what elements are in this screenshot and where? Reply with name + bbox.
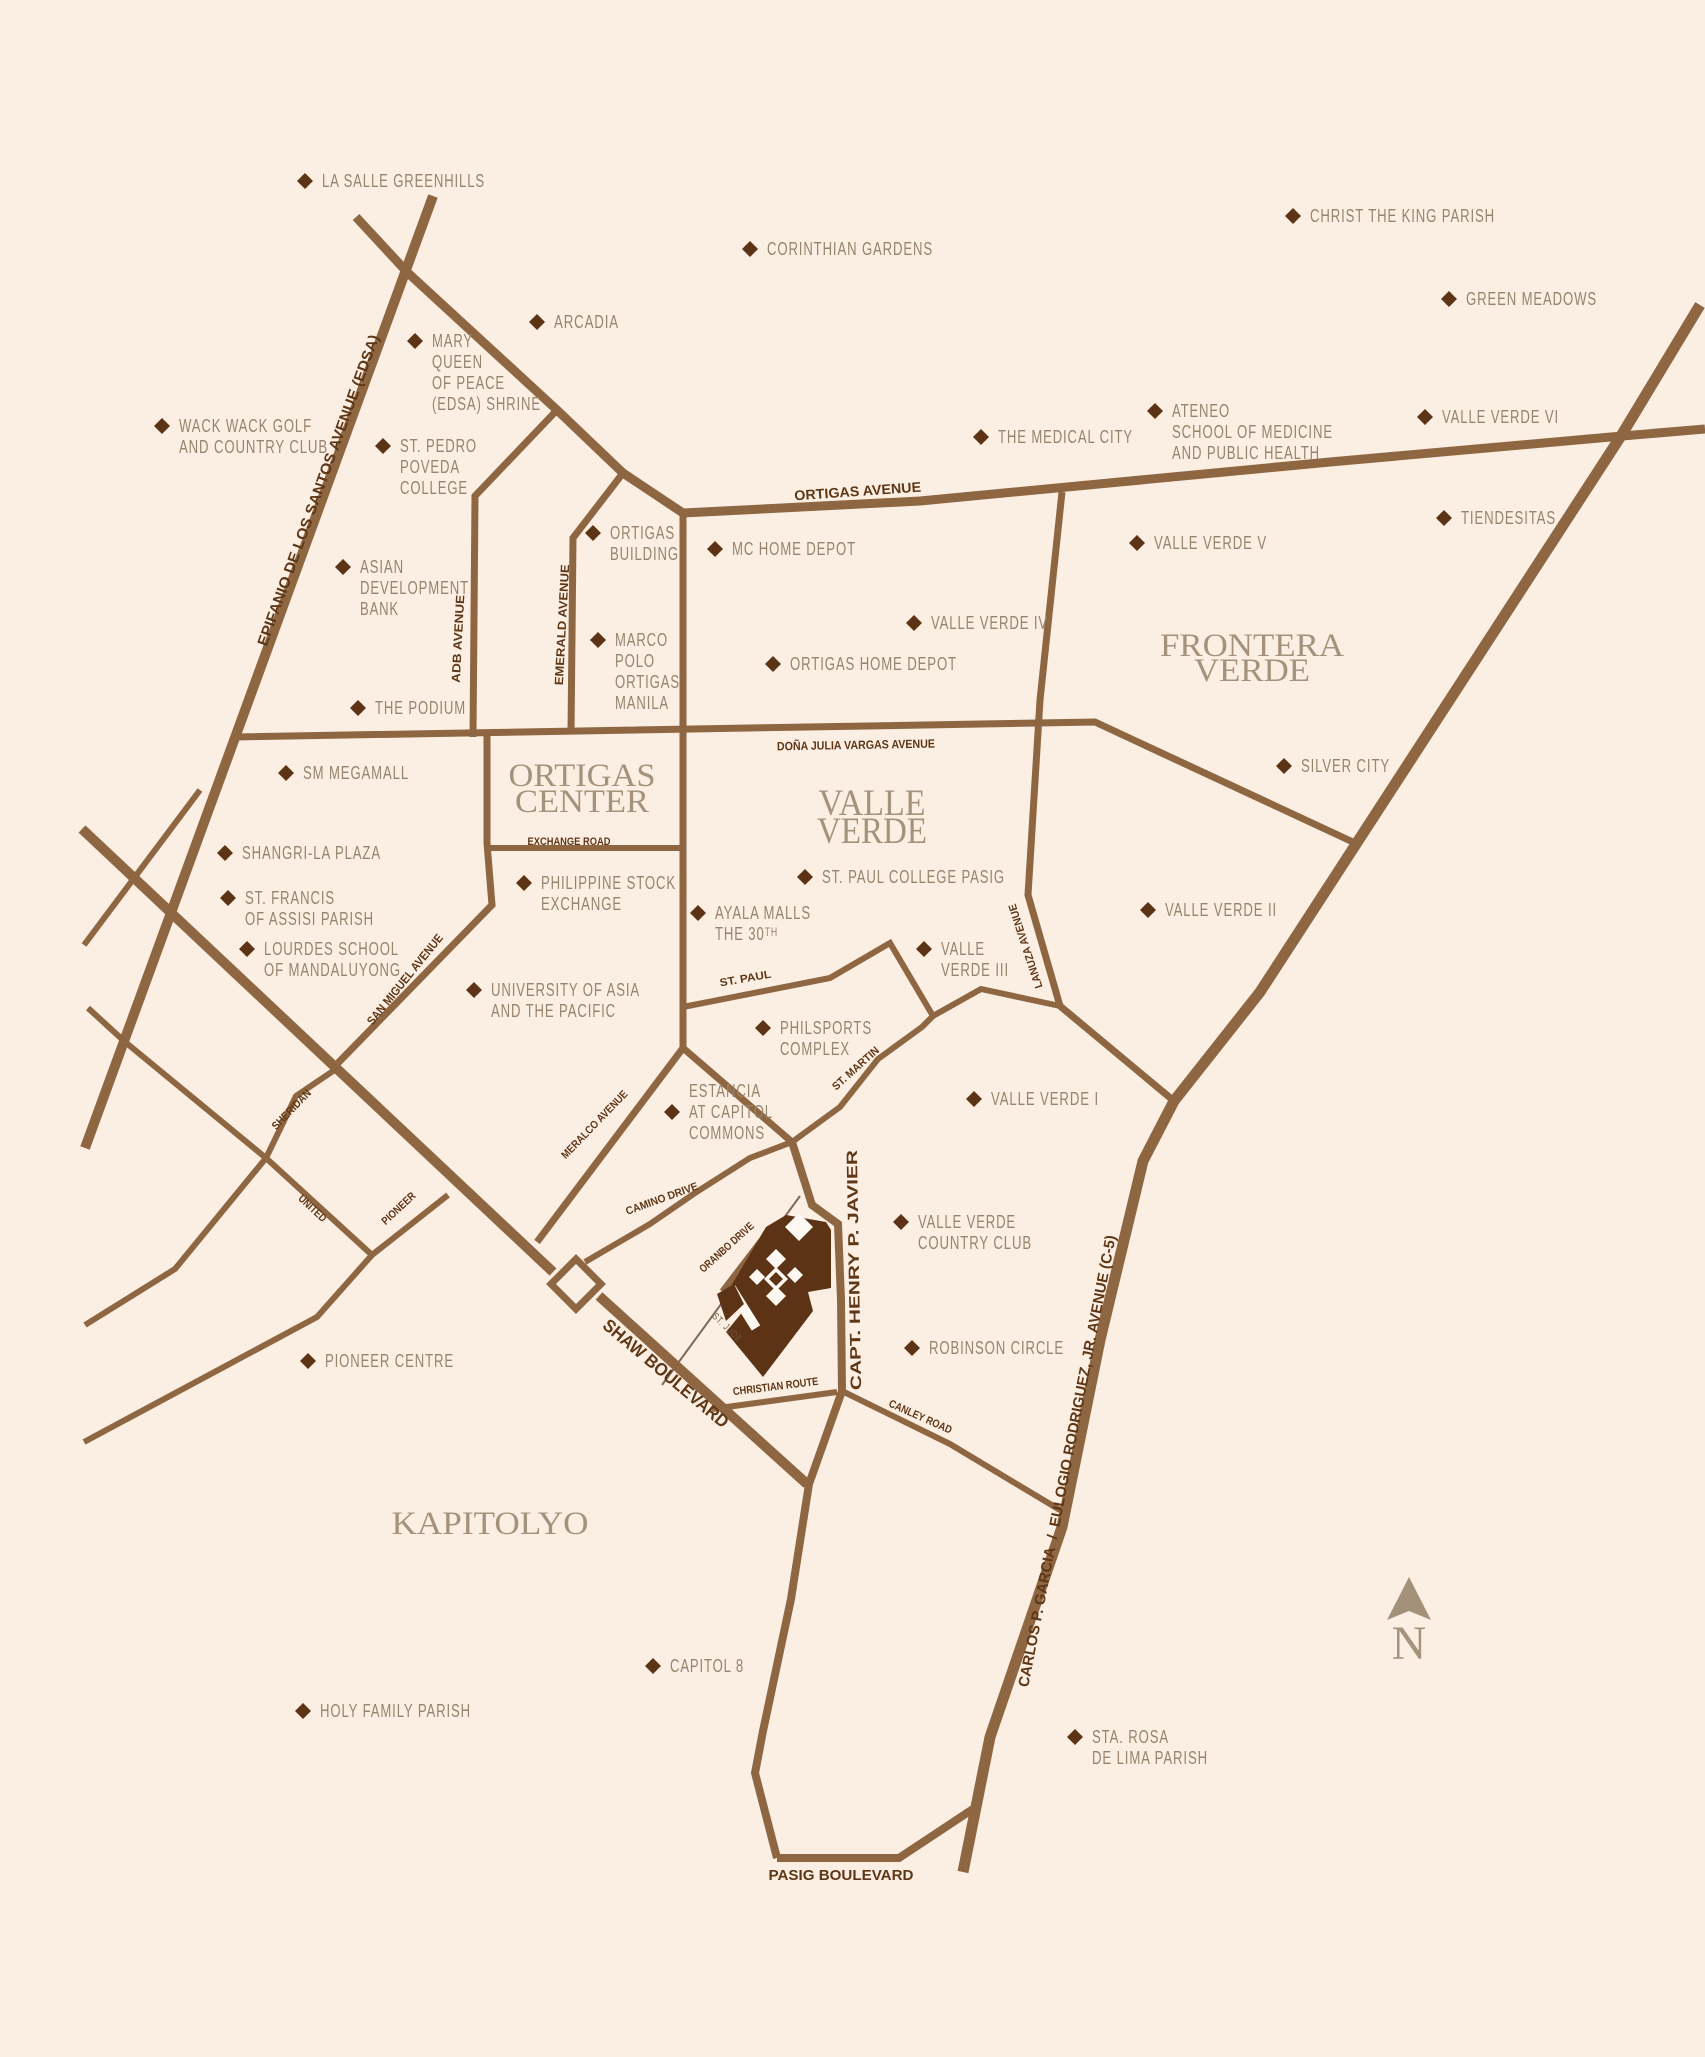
svg-text:ASIAN: ASIAN xyxy=(360,557,404,577)
svg-text:MARY: MARY xyxy=(432,331,473,351)
svg-text:LOURDES SCHOOL: LOURDES SCHOOL xyxy=(264,939,399,959)
svg-text:SCHOOL OF MEDICINE: SCHOOL OF MEDICINE xyxy=(1172,422,1333,442)
svg-text:OF MANDALUYONG: OF MANDALUYONG xyxy=(264,960,401,980)
svg-text:MC HOME DEPOT: MC HOME DEPOT xyxy=(732,539,856,559)
svg-text:VALLE VERDE: VALLE VERDE xyxy=(918,1212,1016,1232)
svg-text:OF ASSISI PARISH: OF ASSISI PARISH xyxy=(245,909,374,929)
svg-text:OF PEACE: OF PEACE xyxy=(432,373,505,393)
svg-text:TIENDESITAS: TIENDESITAS xyxy=(1461,508,1556,528)
svg-text:ATENEO: ATENEO xyxy=(1172,401,1230,421)
svg-text:CAPITOL 8: CAPITOL 8 xyxy=(670,1656,744,1676)
svg-text:PHILSPORTS: PHILSPORTS xyxy=(780,1018,872,1038)
svg-text:AT CAPITOL: AT CAPITOL xyxy=(689,1102,773,1122)
svg-text:THE MEDICAL CITY: THE MEDICAL CITY xyxy=(998,427,1133,447)
svg-text:UNIVERSITY OF ASIA: UNIVERSITY OF ASIA xyxy=(491,980,640,1000)
svg-text:KAPITOLYO: KAPITOLYO xyxy=(392,1506,589,1542)
svg-text:EXCHANGE: EXCHANGE xyxy=(541,894,622,914)
svg-text:MANILA: MANILA xyxy=(615,693,669,713)
svg-text:SM MEGAMALL: SM MEGAMALL xyxy=(303,763,409,783)
svg-text:LA SALLE GREENHILLS: LA SALLE GREENHILLS xyxy=(322,171,485,191)
svg-text:AYALA MALLS: AYALA MALLS xyxy=(715,903,811,923)
svg-text:BANK: BANK xyxy=(360,599,399,619)
svg-text:CHRIST THE KING PARISH: CHRIST THE KING PARISH xyxy=(1310,206,1495,226)
svg-text:POVEDA: POVEDA xyxy=(400,457,460,477)
svg-text:VALLE: VALLE xyxy=(941,939,985,959)
svg-text:(EDSA) SHRINE: (EDSA) SHRINE xyxy=(432,394,541,414)
svg-text:WACK WACK GOLF: WACK WACK GOLF xyxy=(179,416,312,436)
svg-text:AND PUBLIC HEALTH: AND PUBLIC HEALTH xyxy=(1172,443,1320,463)
svg-text:N: N xyxy=(1392,1617,1427,1670)
svg-text:VALLE VERDE VI: VALLE VERDE VI xyxy=(1442,407,1559,427)
svg-text:VERDE III: VERDE III xyxy=(941,960,1009,980)
svg-text:SILVER CITY: SILVER CITY xyxy=(1301,756,1390,776)
svg-text:PASIG BOULEVARD: PASIG BOULEVARD xyxy=(769,1867,914,1884)
svg-text:COLLEGE: COLLEGE xyxy=(400,478,468,498)
svg-text:COMPLEX: COMPLEX xyxy=(780,1039,850,1059)
svg-text:QUEEN: QUEEN xyxy=(432,352,483,372)
svg-text:ORTIGAS: ORTIGAS xyxy=(610,523,675,543)
svg-text:DEVELOPMENT: DEVELOPMENT xyxy=(360,578,469,598)
svg-text:DE LIMA PARISH: DE LIMA PARISH xyxy=(1092,1748,1208,1768)
svg-text:MARCO: MARCO xyxy=(615,630,668,650)
svg-text:PIONEER CENTRE: PIONEER CENTRE xyxy=(325,1351,454,1371)
svg-text:AND THE PACIFIC: AND THE PACIFIC xyxy=(491,1001,616,1021)
svg-text:STA. ROSA: STA. ROSA xyxy=(1092,1727,1169,1747)
svg-text:SHANGRI-LA PLAZA: SHANGRI-LA PLAZA xyxy=(242,843,381,863)
svg-text:ORTIGAS HOME DEPOT: ORTIGAS HOME DEPOT xyxy=(790,654,957,674)
svg-text:BUILDING: BUILDING xyxy=(610,544,679,564)
svg-text:HOLY FAMILY PARISH: HOLY FAMILY PARISH xyxy=(320,1701,471,1721)
svg-text:ST. FRANCIS: ST. FRANCIS xyxy=(245,888,335,908)
svg-text:COUNTRY CLUB: COUNTRY CLUB xyxy=(918,1233,1032,1253)
svg-text:PHILIPPINE STOCK: PHILIPPINE STOCK xyxy=(541,873,676,893)
svg-text:ARCADIA: ARCADIA xyxy=(554,312,619,332)
svg-text:ESTANCIA: ESTANCIA xyxy=(689,1081,761,1101)
svg-text:VALLE VERDE II: VALLE VERDE II xyxy=(1165,900,1277,920)
svg-text:ST. PEDRO: ST. PEDRO xyxy=(400,436,477,456)
svg-text:VERDE: VERDE xyxy=(1194,653,1310,689)
svg-text:VALLE VERDE V: VALLE VERDE V xyxy=(1154,533,1267,553)
svg-text:GREEN MEADOWS: GREEN MEADOWS xyxy=(1466,289,1597,309)
svg-text:COMMONS: COMMONS xyxy=(689,1123,765,1143)
svg-text:DOÑA JULIA VARGAS AVENUE: DOÑA JULIA VARGAS AVENUE xyxy=(777,736,935,754)
svg-text:THE PODIUM: THE PODIUM xyxy=(375,698,466,718)
svg-text:VALLE VERDE I: VALLE VERDE I xyxy=(991,1089,1099,1109)
svg-text:ORTIGAS: ORTIGAS xyxy=(615,672,680,692)
svg-text:ROBINSON CIRCLE: ROBINSON CIRCLE xyxy=(929,1338,1064,1358)
svg-text:POLO: POLO xyxy=(615,651,655,671)
svg-text:CENTER: CENTER xyxy=(515,784,649,820)
svg-text:VALLE VERDE IV: VALLE VERDE IV xyxy=(931,613,1048,633)
svg-text:VERDE: VERDE xyxy=(817,811,927,852)
svg-text:AND COUNTRY CLUB: AND COUNTRY CLUB xyxy=(179,437,328,457)
svg-text:EXCHANGE ROAD: EXCHANGE ROAD xyxy=(528,836,611,848)
svg-text:ST. PAUL COLLEGE PASIG: ST. PAUL COLLEGE PASIG xyxy=(822,867,1005,887)
svg-text:CORINTHIAN GARDENS: CORINTHIAN GARDENS xyxy=(767,239,933,259)
